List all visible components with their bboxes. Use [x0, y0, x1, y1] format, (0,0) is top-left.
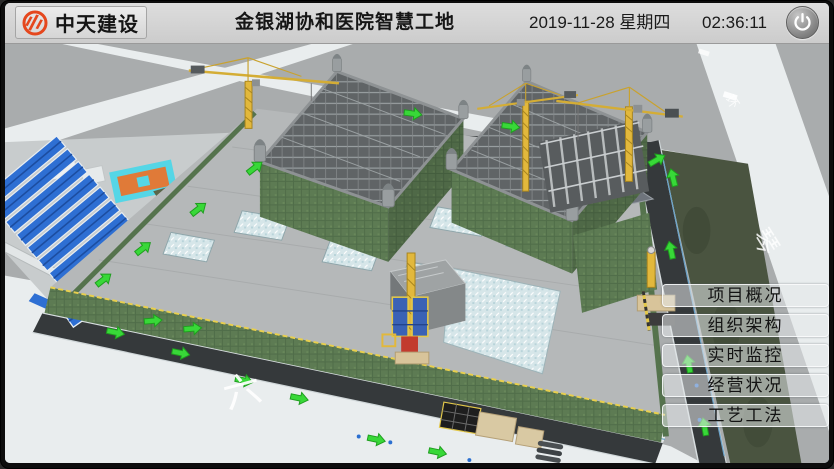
site-3d-viewport[interactable]: 六 琴 环 [5, 44, 829, 463]
logo-panel: 中天建设 [15, 6, 147, 39]
app-window: 中天建设 金银湖协和医院智慧工地 2019-11-28 星期四 02:36:11 [0, 0, 834, 469]
time-text: 02:36:11 [702, 3, 767, 43]
power-icon [793, 13, 812, 32]
page-title: 金银湖协和医院智慧工地 [235, 3, 455, 43]
power-button[interactable] [786, 6, 819, 39]
menu-button-craft-methods[interactable]: 工艺工法 [662, 404, 829, 427]
site-3d-view: 六 琴 环 [5, 44, 829, 463]
header-bar: 中天建设 金银湖协和医院智慧工地 2019-11-28 星期四 02:36:11 [5, 3, 829, 44]
menu-button-org-structure[interactable]: 组织架构 [662, 314, 829, 337]
company-logo-icon [21, 9, 49, 37]
date-text: 2019-11-28 星期四 [529, 3, 670, 43]
menu-button-realtime-monitoring[interactable]: 实时监控 [662, 344, 829, 367]
company-name: 中天建设 [55, 8, 139, 37]
menu-button-business-status[interactable]: 经营状况 [662, 374, 829, 397]
menu-button-project-overview[interactable]: 项目概况 [662, 284, 829, 307]
app-inner: 中天建设 金银湖协和医院智慧工地 2019-11-28 星期四 02:36:11 [5, 3, 829, 463]
